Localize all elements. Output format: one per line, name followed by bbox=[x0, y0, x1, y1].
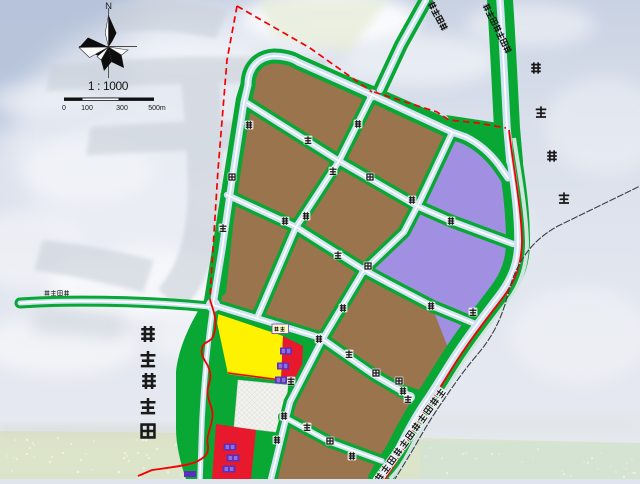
svg-text:0: 0 bbox=[62, 105, 66, 112]
svg-text:300: 300 bbox=[116, 105, 128, 112]
svg-text:1 : 1000: 1 : 1000 bbox=[88, 79, 129, 93]
svg-text:N: N bbox=[105, 1, 112, 12]
svg-text:500m: 500m bbox=[148, 105, 166, 112]
svg-text:100: 100 bbox=[81, 105, 93, 112]
